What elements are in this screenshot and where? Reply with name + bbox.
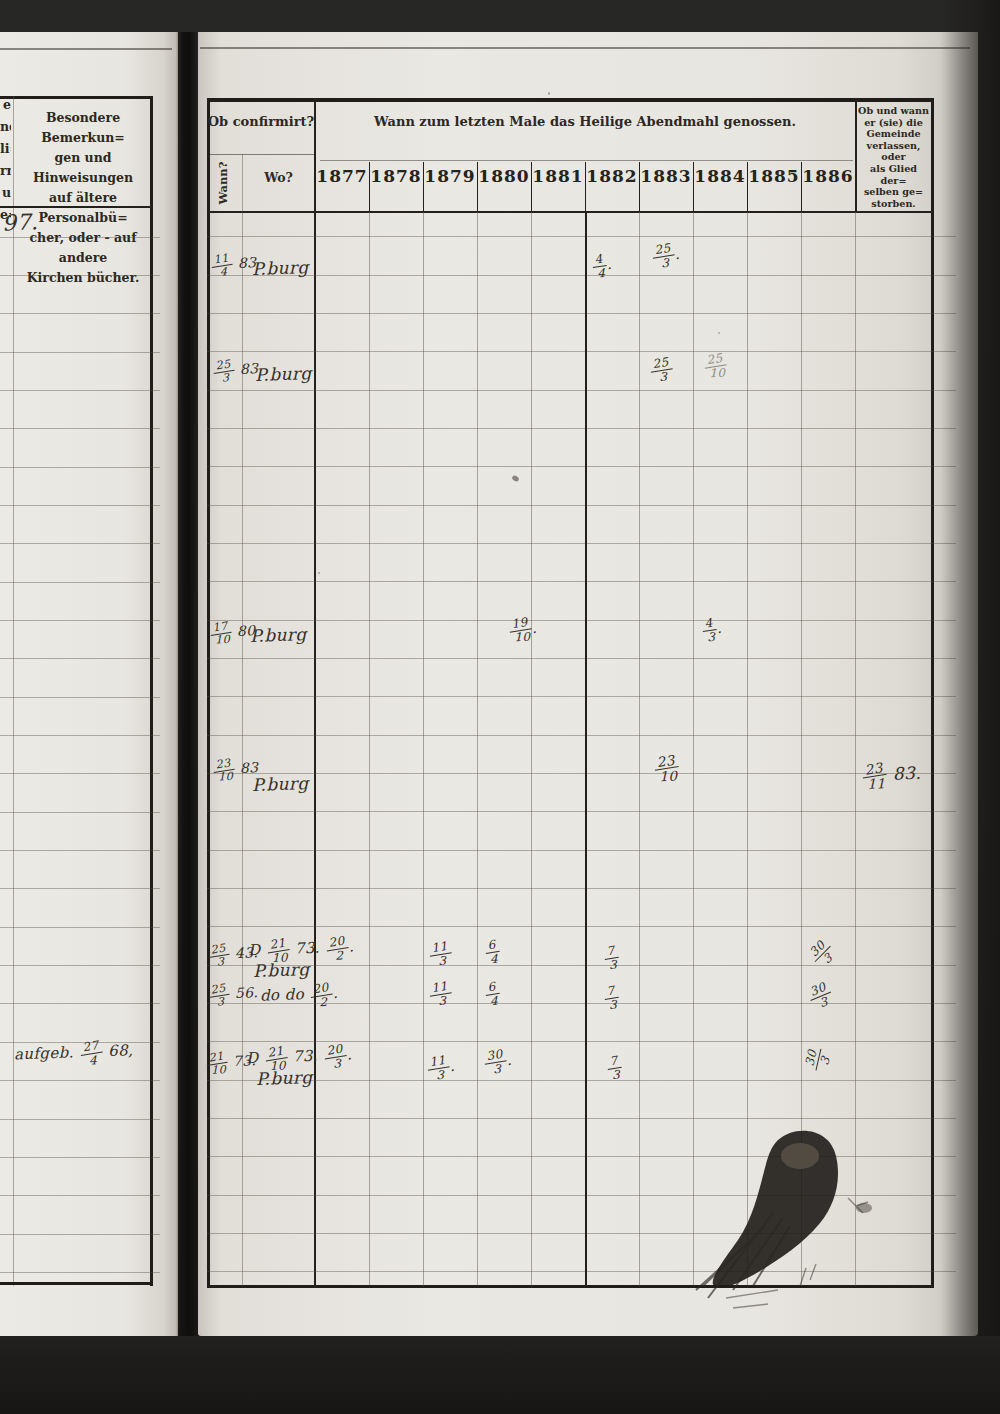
entry-row1-1883: 253. [651, 243, 681, 269]
entry-row6-1879: 113 [428, 982, 453, 1007]
year-divider [693, 162, 694, 212]
communion-header: Wann zum letzten Male das Heilige Abendm… [315, 114, 855, 129]
entry-row3-wann: 1710 80 [209, 621, 256, 646]
departure-header-line: selben ge= [857, 186, 930, 198]
departure-header-line: Ob und wann [857, 105, 930, 117]
left-table-top-border [0, 96, 153, 99]
dust-speck [318, 572, 320, 574]
confirmation-header: Ob confirmirt? [207, 114, 315, 129]
entry-row6-wo: do do 202. [260, 983, 339, 1010]
departure-header-line: Gemeinde [857, 128, 930, 140]
column-line [639, 212, 640, 1286]
departure-header-line: verlassen, oder [857, 140, 930, 163]
fragment-line: li= [0, 138, 11, 160]
remarks-header-line: Besondere Bemerkun= [15, 108, 151, 148]
entry-row3-1884: 43. [701, 618, 723, 643]
departure-header-line: storben. [857, 198, 930, 210]
entry-row7-1880: 303. [483, 1049, 513, 1075]
fragment-line: e [0, 94, 11, 116]
departure-header-line: er (sie) die [857, 117, 930, 129]
year-header-1883: 1883 [639, 166, 693, 186]
entry-row6-1880: 64 [484, 982, 501, 1007]
left-page: e nd li= rn u e= Besondere Bemerkun= gen… [0, 30, 178, 1338]
entry-row7-1879: 113. [426, 1055, 456, 1081]
year-divider [585, 162, 586, 212]
entry-row2-wo: P.burg [255, 363, 312, 385]
year-header-1880: 1880 [477, 166, 531, 186]
entry-row1-1882: 44. [591, 254, 613, 279]
dust-speck [548, 92, 550, 95]
year-header-1877: 1877 [315, 166, 369, 186]
right-page: Ob confirmirt? Wann zum letzten Male das… [198, 32, 978, 1336]
remarks-header-line: gen und Hinweisungen [15, 148, 151, 188]
entry-row4-1883: 2310 [653, 755, 680, 783]
year-divider [477, 162, 478, 212]
book-gutter [176, 32, 200, 1340]
wann-label: Wann? [216, 162, 230, 205]
left-page-top-rule [0, 48, 172, 50]
entry-row6-1882: 73 [603, 986, 620, 1011]
wann-column-header: Wann? [204, 154, 242, 212]
photo-right-fade [940, 0, 1000, 1414]
years-top-rule [320, 160, 853, 161]
column-line [531, 212, 532, 1286]
entry-row2-1884: 2510 [703, 354, 728, 379]
left-page-ruled-grid [0, 208, 160, 1284]
photo-top-margin [0, 0, 1000, 32]
entry-row7-wo: P.burg [256, 1067, 313, 1089]
entry-row6-wann: 253 56. [207, 983, 259, 1008]
entry-row5-1879: 113 [428, 942, 453, 967]
year-header-1882: 1882 [585, 166, 639, 186]
handwritten-page-number: 97. [2, 209, 39, 235]
column-line [423, 212, 424, 1286]
entry-row2-1883: 253 [649, 358, 674, 383]
entry-row7-1882: 73 [606, 1056, 623, 1081]
entry-row1-wo: P.burg [252, 257, 309, 279]
year-divider [423, 162, 424, 212]
departure-column-header: Ob und wann er (sie) die Gemeinde verlas… [857, 105, 930, 209]
year-divider [747, 162, 748, 212]
year-header-1881: 1881 [531, 166, 585, 186]
column-line [477, 212, 478, 1286]
entry-row3-wo: P.burg [250, 624, 307, 646]
cutoff-column-fragments: e nd li= rn u e= [0, 94, 11, 226]
entry-row3-1880: 1910. [508, 617, 538, 643]
year-header-1886: 1886 [801, 166, 855, 186]
year-header-1879: 1879 [423, 166, 477, 186]
year-divider [801, 162, 802, 212]
entry-row4-wo: P.burg [252, 773, 309, 795]
column-line [369, 212, 370, 1286]
entry-row5-wo: P.burg [253, 959, 310, 981]
photo-bottom-margin [0, 1336, 1000, 1414]
handwritten-note-aufgeb: aufgeb. 274 68, [14, 1040, 134, 1069]
entry-row5-1882: 73 [603, 946, 620, 971]
right-page-top-rule [200, 47, 970, 49]
fragment-line: rn [0, 160, 11, 182]
entry-row5-1880: 64 [484, 940, 501, 965]
entry-row2-wann: 253 83 [212, 359, 259, 384]
column-line-dark [585, 212, 587, 1286]
year-divider [531, 162, 532, 212]
ink-blot [678, 1118, 918, 1328]
year-header-1884: 1884 [693, 166, 747, 186]
entry-row4-departure: 2311 83. [861, 761, 922, 791]
entry-row1-wann: 114 83 [210, 253, 257, 278]
departure-header-line: als Glied der= [857, 163, 930, 186]
year-header-1878: 1878 [369, 166, 423, 186]
wo-column-header: Wo? [242, 170, 315, 185]
fragment-line: u [0, 182, 11, 204]
fragment-line: nd [0, 116, 11, 138]
scanned-register-photo: e nd li= rn u e= Besondere Bemerkun= gen… [0, 0, 1000, 1414]
year-divider [369, 162, 370, 212]
year-divider [639, 162, 640, 212]
year-header-1885: 1885 [747, 166, 801, 186]
dust-speck [718, 332, 720, 334]
